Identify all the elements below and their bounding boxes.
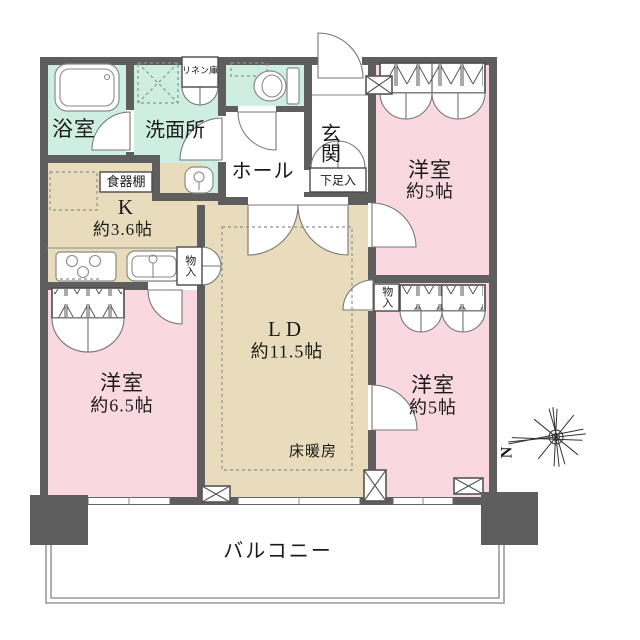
shoe-box-door-right	[338, 141, 365, 168]
pillar-bottom-right	[481, 492, 538, 545]
storage-right-label: 物入	[380, 286, 392, 308]
bathtub-icon	[55, 64, 119, 111]
window-bedroom-bottom-right	[393, 498, 453, 505]
entrance-label: 玄関	[318, 123, 339, 163]
shoe-box-label: 下足入	[320, 175, 356, 188]
bath-label: 浴室	[52, 118, 96, 140]
bedroom-left-label: 洋室	[100, 372, 144, 394]
entrance-door	[318, 33, 363, 78]
floor-heating-label: 床暖房	[289, 445, 337, 461]
ps-box-bottom-center	[364, 470, 386, 501]
toilet-door	[238, 112, 276, 150]
bedroom-top-right-size: 約5帖	[406, 183, 454, 202]
closet-bedroom-left	[52, 288, 124, 352]
balcony-label: バルコニー	[223, 542, 333, 563]
bedroom-top-right-label: 洋室	[408, 159, 452, 181]
window-living-dining	[238, 498, 360, 505]
ps-box-bottom-right	[454, 478, 483, 494]
kitchen-size: 約3.6帖	[93, 221, 153, 239]
pillar-bottom-left	[30, 495, 88, 545]
living-dining-size: 約11.5帖	[251, 343, 324, 362]
ps-box-bottom-left	[202, 486, 230, 502]
living-dining-label: LD	[268, 318, 306, 340]
washroom-label: 洗面所	[145, 121, 205, 142]
hall-label: ホール	[232, 162, 295, 183]
windows	[88, 498, 453, 505]
bedroom-bottom-right-label: 洋室	[411, 374, 455, 396]
compass-north-label: N	[500, 446, 517, 459]
linen-label: リネン庫	[182, 66, 218, 75]
kitchen-counter	[47, 248, 181, 281]
kitchen-label: K	[118, 196, 134, 218]
washbasin-icon	[185, 167, 213, 193]
ps-box-entrance	[366, 76, 392, 94]
window-left-bedroom	[88, 498, 170, 505]
cupboard-label: 食器棚	[106, 175, 145, 189]
compass-icon	[505, 404, 589, 472]
bedroom-left-size: 約6.5帖	[90, 397, 154, 416]
bedroom-bottom-right-size: 約5帖	[409, 399, 457, 418]
storage-left-label: 物入	[183, 255, 195, 277]
floorplan: 浴室 洗面所 リネン庫 玄関 下足入 ホール 食器棚 K 約3.6帖 LD 約1…	[0, 0, 640, 640]
